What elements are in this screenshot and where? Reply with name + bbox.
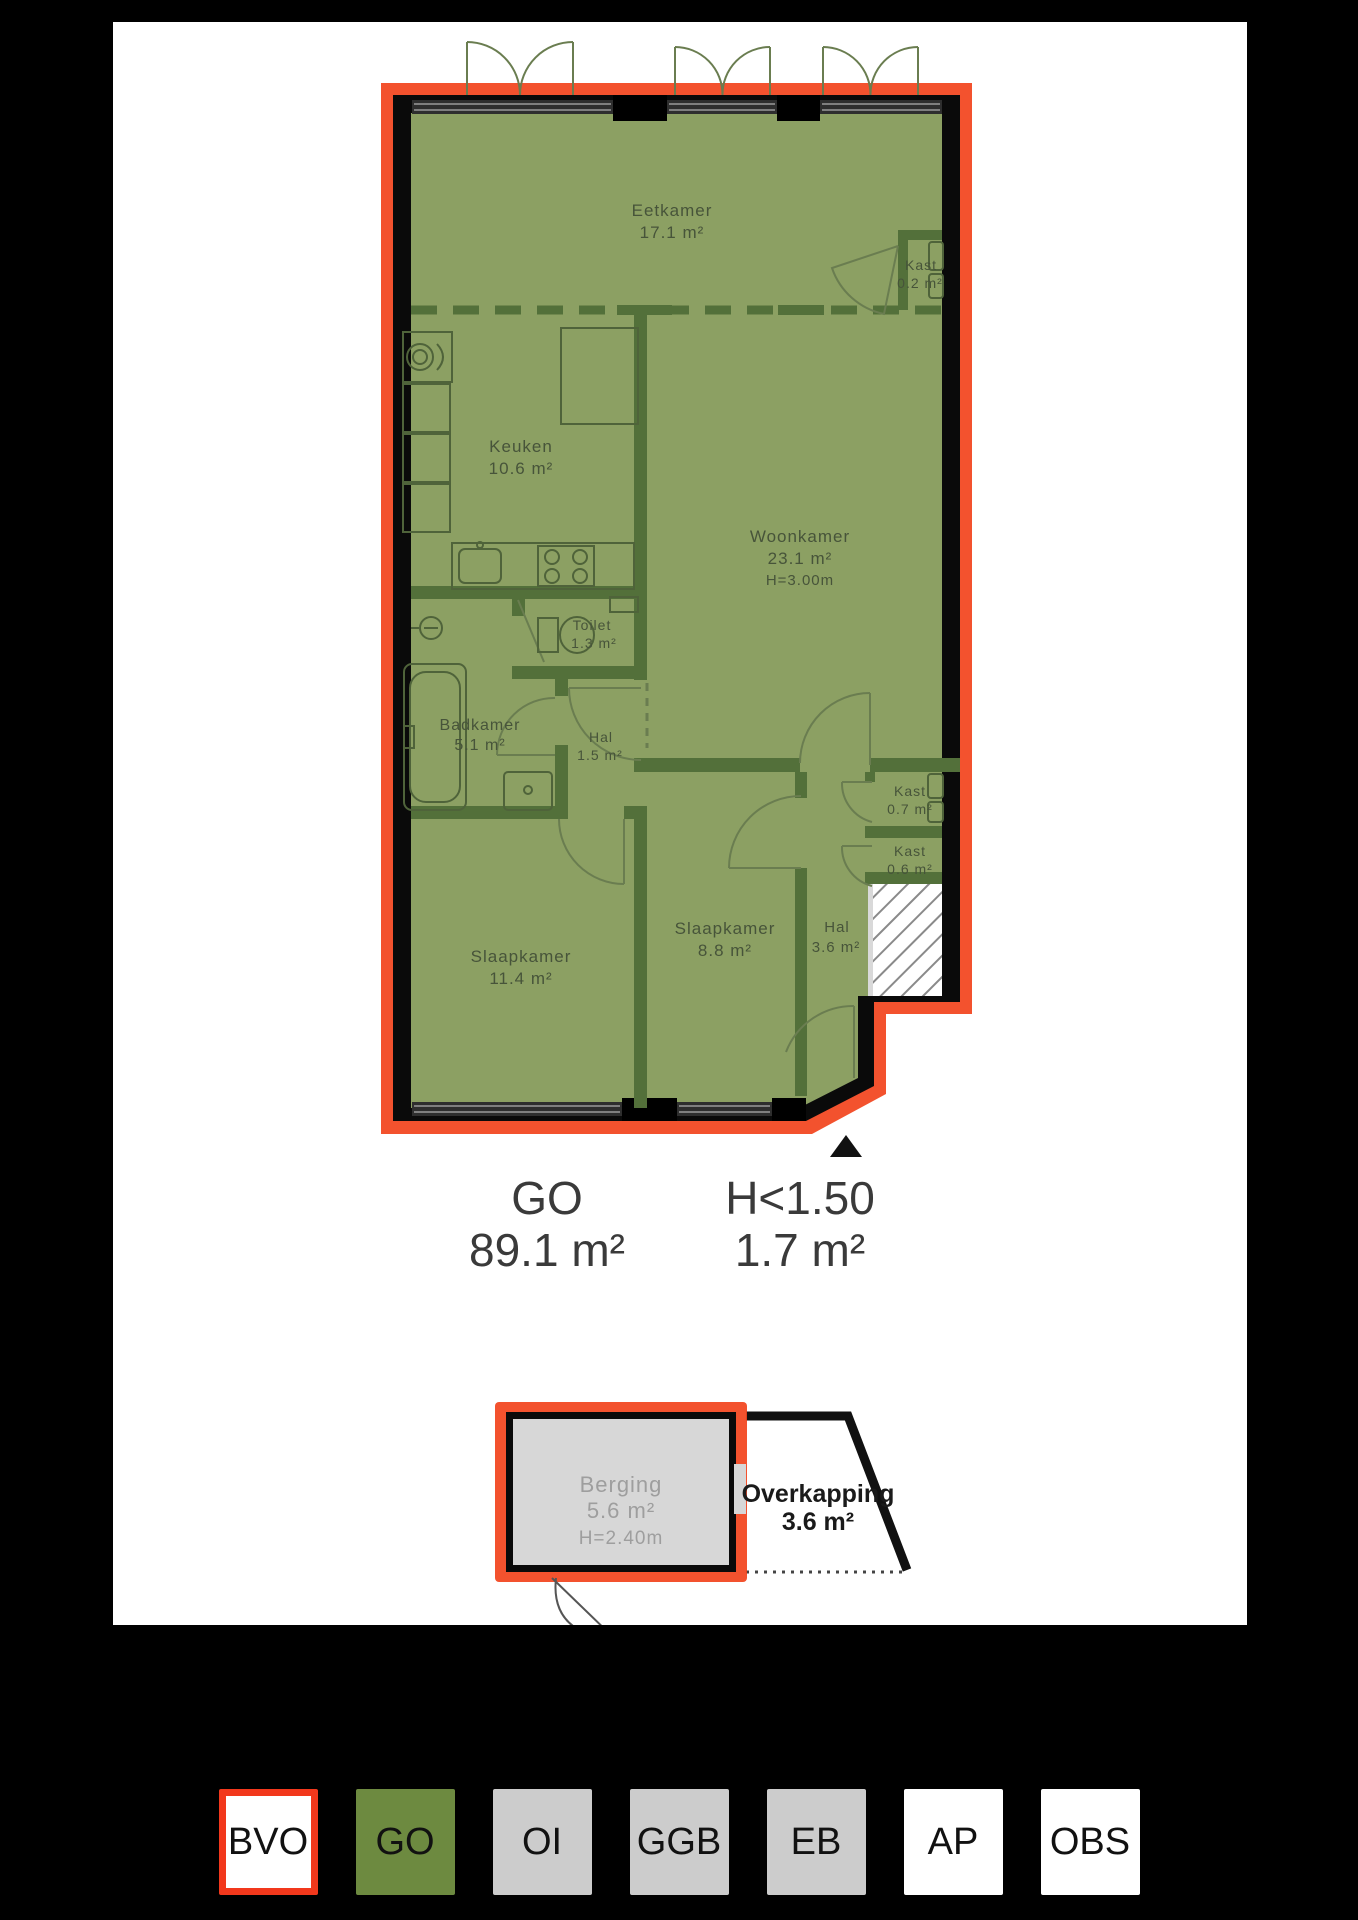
legend-button-oi[interactable]: OI	[493, 1789, 592, 1895]
legend-button-ap[interactable]: AP	[904, 1789, 1003, 1895]
svg-text:0.2 m²: 0.2 m²	[897, 275, 943, 291]
svg-text:8.8 m²: 8.8 m²	[698, 941, 752, 960]
room-label-kast07: Kast	[894, 783, 926, 799]
svg-text:1.3 m²: 1.3 m²	[571, 635, 617, 651]
svg-text:5.6 m²: 5.6 m²	[587, 1498, 655, 1523]
floorplan-annex: Berging 5.6 m² H=2.40m Overkapping 3.6 m…	[495, 1402, 910, 1625]
legend-button-ggb[interactable]: GGB	[630, 1789, 729, 1895]
svg-text:3.6 m²: 3.6 m²	[812, 939, 861, 956]
room-label-hal2: Hal	[824, 919, 850, 936]
summary-low-value: 1.7 m²	[735, 1224, 865, 1276]
svg-text:10.6 m²: 10.6 m²	[489, 459, 554, 478]
overkapping-label: Overkapping	[742, 1480, 895, 1508]
legend-button-obs[interactable]: OBS	[1041, 1789, 1140, 1895]
berging-door-swing	[552, 1578, 614, 1625]
svg-text:5.1 m²: 5.1 m²	[454, 737, 505, 754]
svg-text:3.6 m²: 3.6 m²	[782, 1508, 854, 1536]
summary-go-label: GO	[511, 1172, 583, 1224]
room-label-slaapkamer2: Slaapkamer	[675, 919, 776, 938]
legend-button-go[interactable]: GO	[356, 1789, 455, 1895]
legend-toolbar: BVO GO OI GGB EB AP OBS	[0, 1789, 1358, 1895]
svg-text:H=2.40m: H=2.40m	[579, 1528, 664, 1549]
legend-button-bvo[interactable]: BVO	[219, 1789, 318, 1895]
room-label-hal1: Hal	[589, 729, 613, 745]
area-summary: GO 89.1 m² H<1.50 1.7 m²	[469, 1135, 875, 1276]
legend-button-eb[interactable]: EB	[767, 1789, 866, 1895]
room-label-eetkamer: Eetkamer	[632, 201, 713, 220]
svg-text:23.1 m²: 23.1 m²	[768, 549, 833, 568]
svg-text:1.5 m²: 1.5 m²	[577, 747, 623, 763]
floorplan-canvas: Eetkamer 17.1 m² Kast 0.2 m² Keuken 10.6…	[113, 22, 1247, 1625]
room-label-kast06: Kast	[894, 843, 926, 859]
room-label-slaapkamer1: Slaapkamer	[471, 947, 572, 966]
svg-text:17.1 m²: 17.1 m²	[640, 223, 705, 242]
floorplan-svg: Eetkamer 17.1 m² Kast 0.2 m² Keuken 10.6…	[113, 22, 1247, 1625]
berging-label: Berging	[580, 1472, 663, 1497]
room-label-toilet: Toilet	[573, 617, 612, 633]
svg-text:11.4 m²: 11.4 m²	[489, 969, 552, 988]
svg-text:0.6 m²: 0.6 m²	[887, 861, 933, 877]
summary-go-value: 89.1 m²	[469, 1224, 625, 1276]
room-label-keuken: Keuken	[489, 437, 553, 456]
floorplan-main: Eetkamer 17.1 m² Kast 0.2 m² Keuken 10.6…	[381, 42, 972, 1134]
svg-text:0.7 m²: 0.7 m²	[887, 801, 933, 817]
page: { "colors": { "outline_red": "#f2381c", …	[0, 0, 1358, 1920]
room-label-woonkamer: Woonkamer	[750, 527, 850, 546]
svg-text:H=3.00m: H=3.00m	[766, 572, 834, 589]
room-label-kast02: Kast	[905, 257, 937, 273]
room-label-badkamer: Badkamer	[440, 717, 521, 734]
summary-low-label: H<1.50	[725, 1172, 875, 1224]
entrance-marker-icon	[830, 1135, 862, 1157]
hatched-low-height-zone	[868, 884, 942, 996]
